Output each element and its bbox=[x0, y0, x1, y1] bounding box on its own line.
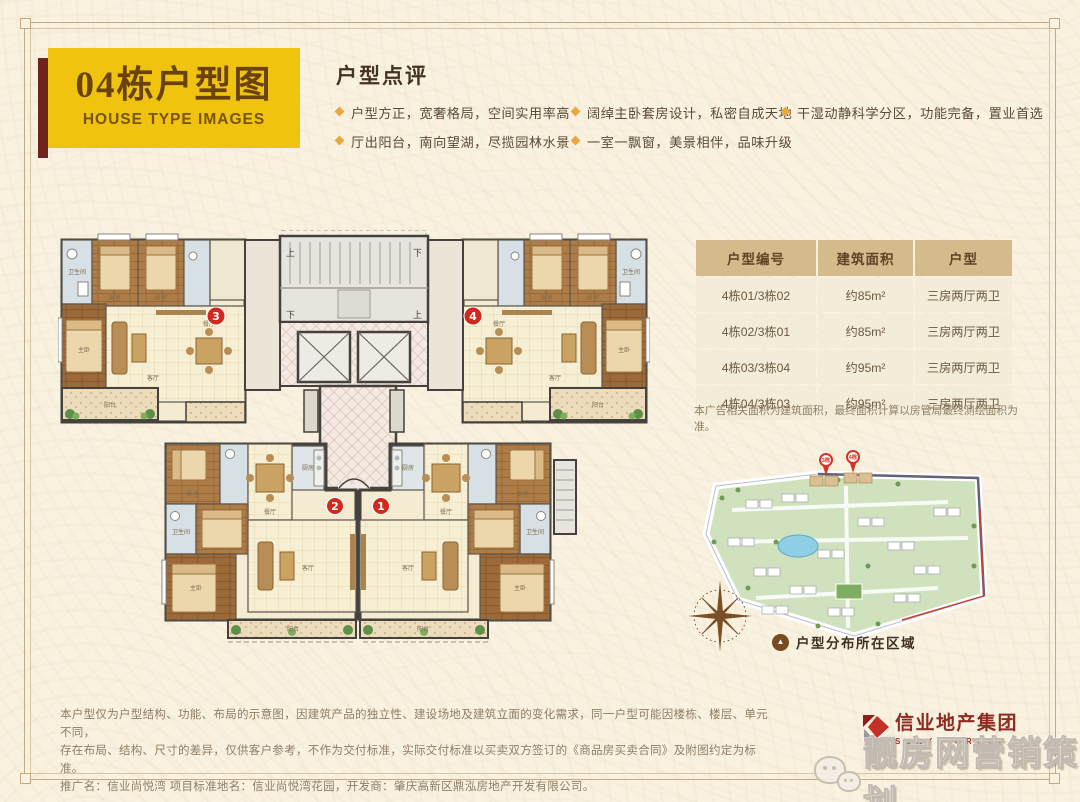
table-note: 本广告相关面积为建筑面积，最终面积计算以房管局最终测绘面积为准。 bbox=[694, 402, 1024, 434]
bullet-diamond-icon bbox=[781, 107, 791, 117]
table-header: 建筑面积 bbox=[818, 240, 913, 276]
bullet-text: 阔绰主卧套房设计，私密自成天地 bbox=[587, 103, 792, 122]
table-cell: 4栋03/3栋04 bbox=[696, 350, 816, 384]
svg-text:卧室: 卧室 bbox=[517, 490, 529, 498]
svg-text:卧室: 卧室 bbox=[155, 294, 167, 302]
table-cell: 约85m² bbox=[818, 314, 913, 348]
side-stair bbox=[554, 460, 576, 534]
svg-text:主卧: 主卧 bbox=[618, 346, 630, 354]
frame-corner bbox=[20, 18, 31, 29]
unit-table: 户型编号 建筑面积 户型 4栋01/3栋02 约85m² 三房两厅两卫 4栋02… bbox=[696, 240, 1012, 420]
table-cell: 三房两厅两卫 bbox=[915, 350, 1012, 384]
bullet-diamond-icon bbox=[335, 136, 345, 146]
review-bullet: 干湿动静科学分区，功能完备，置业首选 bbox=[782, 103, 1043, 122]
disclaimer-line: 推广名：信业尚悦湾 项目标准地名：信业尚悦湾花园，开发商：肇庆高新区鼎泓房地产开… bbox=[60, 778, 770, 796]
page-subtitle: HOUSE TYPE IMAGES bbox=[83, 111, 265, 129]
svg-text:卧室: 卧室 bbox=[187, 490, 199, 498]
svg-text:卫生间: 卫生间 bbox=[172, 528, 190, 536]
bullet-text: 干湿动静科学分区，功能完备，置业首选 bbox=[797, 103, 1043, 122]
svg-text:主卧: 主卧 bbox=[514, 584, 526, 592]
svg-text:客厅: 客厅 bbox=[302, 564, 314, 572]
svg-text:阳台: 阳台 bbox=[287, 625, 299, 633]
stair-down-label: 下 bbox=[286, 311, 295, 321]
area-caption-text: 户型分布所在区域 bbox=[796, 632, 916, 652]
title-box: 04栋户型图 HOUSE TYPE IMAGES bbox=[48, 48, 300, 148]
unit-2-wing bbox=[162, 444, 356, 642]
compass-rose-icon bbox=[682, 576, 758, 652]
frame-corner bbox=[20, 773, 31, 784]
svg-text:卫生间: 卫生间 bbox=[526, 528, 544, 536]
svg-text:主卧: 主卧 bbox=[190, 584, 202, 592]
svg-text:客厅: 客厅 bbox=[147, 374, 159, 382]
svg-text:厨房: 厨房 bbox=[302, 464, 314, 472]
svg-text:客厅: 客厅 bbox=[549, 374, 561, 382]
stair-down-label: 下 bbox=[413, 249, 422, 259]
unit-3-wing bbox=[58, 234, 245, 422]
disclaimer-line: 存在布局、结构、尺寸的差异，仅供客户参考，不作为交付标准，实际交付标准以买卖双方… bbox=[60, 742, 770, 778]
stair-up-label: 上 bbox=[286, 248, 295, 259]
bullet-diamond-icon bbox=[571, 136, 581, 146]
table-cell: 三房两厅两卫 bbox=[915, 278, 1012, 312]
unit-3-marker: 3 bbox=[207, 307, 225, 325]
bullet-diamond-icon bbox=[571, 107, 581, 117]
unit-4-marker: 4 bbox=[464, 307, 482, 325]
bullet-text: 户型方正，宽奢格局，空间实用率高 bbox=[351, 103, 570, 122]
unit-2-marker: 2 bbox=[327, 498, 344, 515]
area-icon: ▲ bbox=[772, 634, 789, 651]
svg-text:阳台: 阳台 bbox=[417, 625, 429, 633]
svg-text:2: 2 bbox=[331, 500, 339, 513]
review-bullet: 厅出阳台，南向望湖，尽揽园林水景 bbox=[336, 132, 570, 151]
svg-text:卫生间: 卫生间 bbox=[68, 268, 86, 276]
svg-text:阳台: 阳台 bbox=[592, 401, 604, 409]
bullet-text: 一室一飘窗，美景相伴，品味升级 bbox=[587, 132, 792, 151]
frame-corner bbox=[1049, 18, 1060, 29]
svg-text:1: 1 bbox=[377, 500, 385, 513]
table-cell: 4栋02/3栋01 bbox=[696, 314, 816, 348]
stair-up-label: 上 bbox=[413, 310, 422, 321]
watermark-text: 靓房网营销策划 bbox=[863, 726, 1080, 802]
page-title: 04栋户型图 bbox=[76, 67, 273, 104]
bullet-diamond-icon bbox=[335, 107, 345, 117]
sports-court bbox=[836, 584, 862, 599]
area-caption: ▲ 户型分布所在区域 bbox=[772, 632, 916, 652]
review-section: 户型点评 户型方正，宽奢格局，空间实用率高 厅出阳台，南向望湖，尽揽园林水景 阔… bbox=[336, 60, 1036, 163]
review-heading: 户型点评 bbox=[336, 60, 1036, 90]
svg-text:餐厅: 餐厅 bbox=[264, 508, 276, 516]
review-bullet: 户型方正，宽奢格局，空间实用率高 bbox=[336, 103, 570, 122]
svg-text:3栋: 3栋 bbox=[822, 456, 831, 464]
svg-text:4: 4 bbox=[469, 310, 477, 323]
table-cell: 三房两厅两卫 bbox=[915, 314, 1012, 348]
pool bbox=[778, 535, 818, 557]
review-bullets: 户型方正，宽奢格局，空间实用率高 厅出阳台，南向望湖，尽揽园林水景 阔绰主卧套房… bbox=[336, 103, 1036, 163]
svg-text:餐厅: 餐厅 bbox=[493, 320, 505, 328]
table-cell: 4栋01/3栋02 bbox=[696, 278, 816, 312]
svg-text:卧室: 卧室 bbox=[587, 294, 599, 302]
title-accent-bar bbox=[38, 58, 48, 158]
svg-text:卧室: 卧室 bbox=[109, 294, 121, 302]
svg-text:客厅: 客厅 bbox=[402, 564, 414, 572]
unit-1-marker: 1 bbox=[373, 498, 390, 515]
svg-text:卫生间: 卫生间 bbox=[622, 268, 640, 276]
svg-text:主卧: 主卧 bbox=[78, 346, 90, 354]
floorplan-bottom-units-2-1: 卧室 餐厅 厨房 客厅 主卧 卫生间 阳台 卧室 餐厅 厨房 客厅 主卧 卫生间… bbox=[158, 430, 578, 645]
svg-text:厨房: 厨房 bbox=[402, 464, 414, 472]
table-header: 户型编号 bbox=[696, 240, 816, 276]
watermark: 靓房网营销策划 bbox=[814, 726, 1080, 802]
wechat-icon bbox=[814, 752, 860, 798]
svg-text:阳台: 阳台 bbox=[104, 401, 116, 409]
bullet-text: 厅出阳台，南向望湖，尽揽园林水景 bbox=[351, 132, 570, 151]
table-header: 户型 bbox=[915, 240, 1012, 276]
svg-text:餐厅: 餐厅 bbox=[440, 508, 452, 516]
pin-building-4: 4栋 bbox=[846, 450, 860, 473]
review-bullet: 一室一飘窗，美景相伴，品味升级 bbox=[572, 132, 792, 151]
disclaimer-line: 本户型仅为户型结构、功能、布局的示意图，因建筑产品的独立性、建设场地及建筑立面的… bbox=[60, 706, 770, 742]
disclaimer: 本户型仅为户型结构、功能、布局的示意图，因建筑产品的独立性、建设场地及建筑立面的… bbox=[60, 706, 770, 796]
flyer-page: 04栋户型图 HOUSE TYPE IMAGES 户型点评 户型方正，宽奢格局，… bbox=[0, 0, 1080, 802]
svg-text:卧室: 卧室 bbox=[541, 294, 553, 302]
svg-text:4栋: 4栋 bbox=[849, 453, 858, 461]
svg-text:3: 3 bbox=[212, 310, 220, 323]
table-cell: 约95m² bbox=[818, 350, 913, 384]
review-bullet: 阔绰主卧套房设计，私密自成天地 bbox=[572, 103, 792, 122]
table-cell: 约85m² bbox=[818, 278, 913, 312]
